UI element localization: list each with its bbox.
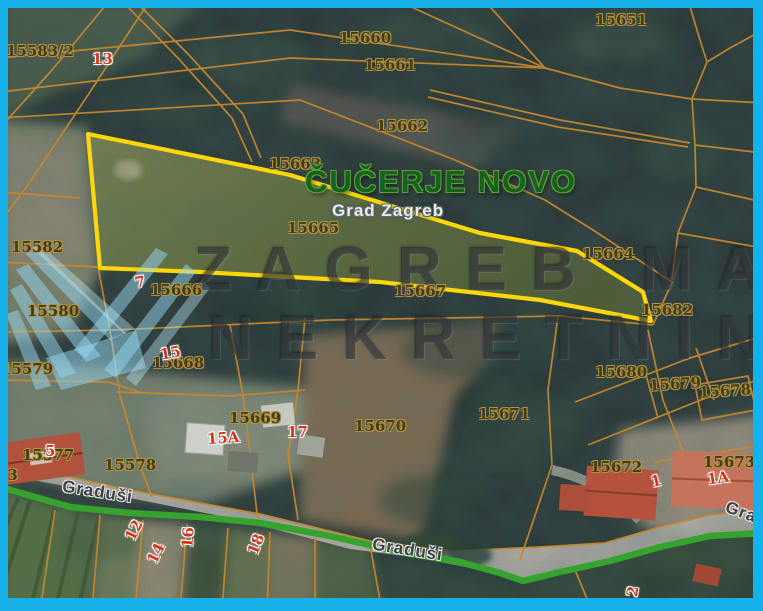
parcel-label-15679: 15679 [649,375,702,394]
parcel-label-15578: 15578 [104,458,156,473]
watermark-line1: ZAGREB MAX [194,234,763,305]
parcel-label-15660: 15660 [339,31,391,46]
parcel-label-15580: 15580 [27,304,79,319]
house-number-13: 13 [92,52,113,67]
parcel-label-15667: 15667 [394,284,446,299]
frame-right [753,0,763,611]
settlement-subtitle: Grad Zagreb [332,202,444,219]
parcel-label-15583-2: 15583/2 [6,44,74,59]
parcel-label-15664: 15664 [582,247,634,262]
house-number-15: 15 [159,344,182,362]
parcel-label-15672: 15672 [590,460,642,475]
parcel-label-15678: 15678 [699,382,752,401]
parcel-label-15671: 15671 [478,407,530,422]
parcel-label-15666: 15666 [150,283,202,298]
house-number-15a: 15A [207,430,240,447]
parcel-label-15680: 15680 [595,365,647,380]
house-number-16: 16 [180,527,196,549]
house-number-5: 5 [45,444,55,459]
parcel-label-15673: 15673 [703,455,755,470]
parcel-label-15579: 15579 [1,362,53,377]
frame-bottom [0,598,763,611]
parcel-label-15669: 15669 [229,411,281,426]
parcel-label-15651: 15651 [595,13,647,28]
parcel-label-15661: 15661 [364,58,416,73]
watermark-logo [6,238,216,403]
map-viewport[interactable]: ZAGREB MAX NEKRETNINE ČUČERJE NOVO Grad … [0,0,763,611]
parcel-label-15665: 15665 [287,221,339,236]
frame-left [0,0,8,611]
house-number-1a: 1A [706,470,730,488]
settlement-title: ČUČERJE NOVO [305,166,577,197]
parcel-label-15670: 15670 [354,419,406,434]
parcel-label-15662: 15662 [376,119,428,134]
house-number-17: 17 [287,425,308,440]
parcel-label-15682: 15682 [641,303,693,318]
parcel-label-15582: 15582 [11,240,63,255]
frame-top [0,0,763,8]
map-canvas[interactable]: ZAGREB MAX NEKRETNINE ČUČERJE NOVO Grad … [0,0,763,611]
